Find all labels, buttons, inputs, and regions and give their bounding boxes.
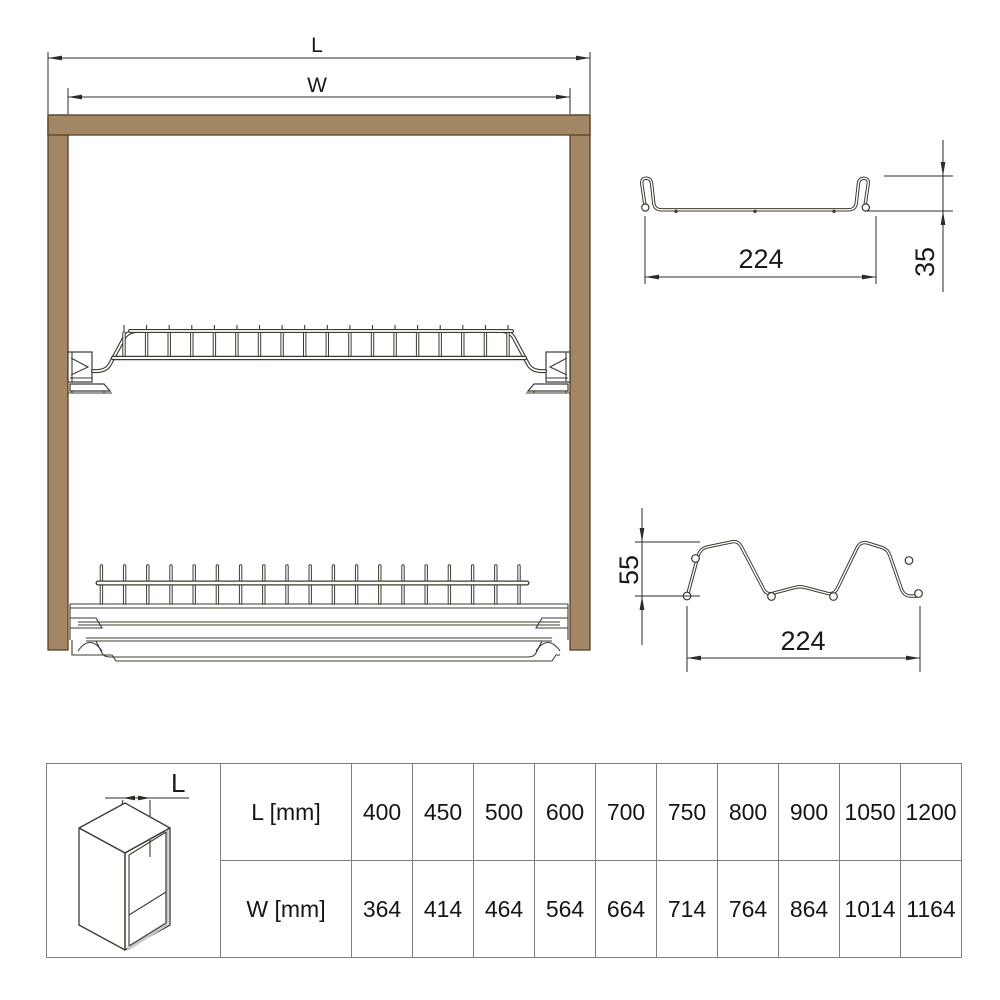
technical-drawing-page: L W bbox=[0, 0, 1000, 1000]
foot-dot bbox=[832, 210, 835, 213]
cabinet-left-panel bbox=[48, 115, 68, 650]
l-value: 700 bbox=[596, 764, 657, 861]
l-value: 500 bbox=[474, 764, 535, 861]
size-table: L L [mm] 400 450 500 600 700 750 800 900… bbox=[46, 763, 962, 958]
dim-arrow-right bbox=[556, 95, 570, 100]
w-value: 564 bbox=[535, 861, 596, 958]
left-mounting-bracket bbox=[68, 352, 112, 393]
row-header-L: L [mm] bbox=[221, 764, 352, 861]
cabinet-right-panel bbox=[570, 115, 590, 650]
foot-dot bbox=[674, 210, 677, 213]
l-value: 400 bbox=[352, 764, 413, 861]
w-value: 764 bbox=[718, 861, 779, 958]
w-value: 464 bbox=[474, 861, 535, 958]
wire-end-right bbox=[862, 204, 869, 211]
dimension-W: W bbox=[68, 74, 570, 114]
cabinet-iso-icon: L bbox=[49, 765, 219, 951]
cabinet-top-panel bbox=[48, 115, 590, 135]
cross-wire-dot bbox=[830, 593, 838, 601]
l-value: 1050 bbox=[840, 764, 901, 861]
w-value: 864 bbox=[779, 861, 840, 958]
icon-dim-label: L bbox=[171, 768, 185, 798]
cabinet-front-view: L W bbox=[48, 34, 590, 661]
w-value: 414 bbox=[413, 861, 474, 958]
foot-dot bbox=[753, 210, 756, 213]
l-value: 900 bbox=[779, 764, 840, 861]
cross-wire-dot bbox=[692, 555, 700, 563]
cabinet-icon-cell: L bbox=[47, 764, 221, 958]
dim-label-55: 55 bbox=[614, 555, 644, 585]
upper-plate-rack bbox=[68, 325, 570, 393]
w-value: 1014 bbox=[840, 861, 901, 958]
cross-wire-dot bbox=[768, 593, 776, 601]
dim-label-224-top: 224 bbox=[738, 244, 783, 274]
l-value: 1200 bbox=[901, 764, 962, 861]
dim-label-W: W bbox=[307, 74, 327, 97]
l-value: 450 bbox=[413, 764, 474, 861]
dim-arrow-right bbox=[576, 56, 590, 61]
w-value: 364 bbox=[352, 861, 413, 958]
w-value: 1164 bbox=[901, 861, 962, 958]
dim-arrow-left bbox=[68, 95, 82, 100]
dimension-35: 35 bbox=[866, 140, 953, 292]
w-value: 714 bbox=[657, 861, 718, 958]
dim-label-L: L bbox=[311, 34, 323, 57]
dimension-224-bottom: 224 bbox=[687, 606, 920, 672]
wire-end-right bbox=[915, 590, 923, 598]
cabinet-carcass bbox=[48, 115, 590, 650]
dimension-224-top: 224 bbox=[645, 216, 876, 284]
drawing-svg: L W bbox=[0, 0, 1000, 745]
w-value: 664 bbox=[596, 861, 657, 958]
wire-end-left bbox=[642, 204, 649, 211]
dim-label-224-bottom: 224 bbox=[780, 626, 825, 656]
row-header-W: W [mm] bbox=[221, 861, 352, 958]
lower-rack-cross-section: 55 224 bbox=[614, 508, 922, 672]
lower-pin-rack bbox=[70, 566, 568, 661]
cross-wire-dot bbox=[905, 557, 913, 565]
dim-label-35: 35 bbox=[910, 247, 940, 277]
l-value: 600 bbox=[535, 764, 596, 861]
l-value: 750 bbox=[657, 764, 718, 861]
upper-rack-cross-section: 224 35 bbox=[642, 140, 953, 292]
dim-arrow-left bbox=[48, 56, 62, 61]
drip-tray-base bbox=[70, 604, 568, 661]
l-value: 800 bbox=[718, 764, 779, 861]
right-mounting-bracket bbox=[526, 352, 570, 393]
